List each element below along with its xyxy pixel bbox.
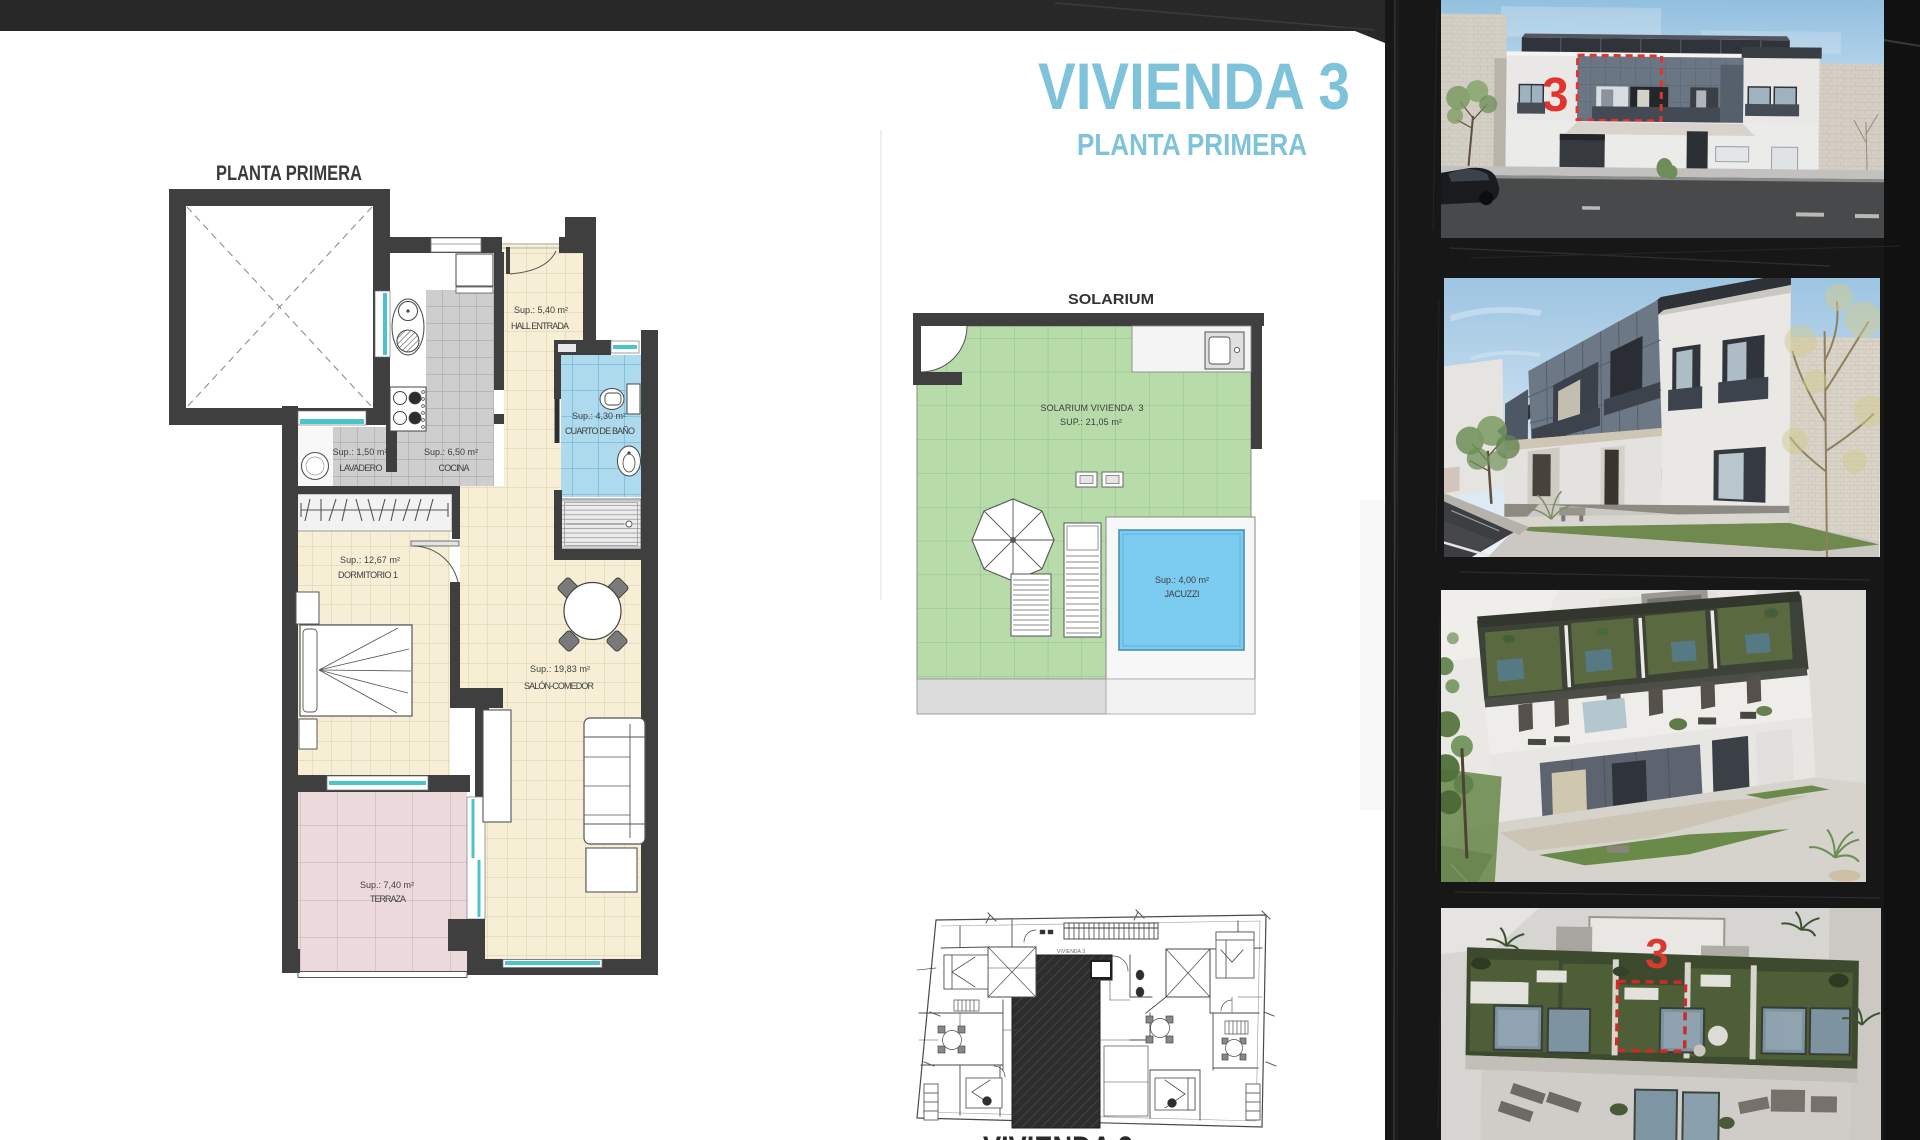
svg-text:PLANTA PRIMERA: PLANTA PRIMERA (216, 162, 362, 185)
svg-text:VIVIENDA 3: VIVIENDA 3 (1057, 949, 1085, 955)
svg-text:DORMITORIO 1: DORMITORIO 1 (338, 570, 398, 580)
svg-text:JACUZZI: JACUZZI (1165, 589, 1200, 599)
svg-text:SOLARIUM: SOLARIUM (1068, 291, 1154, 308)
svg-text:SALÓN-COMEDOR: SALÓN-COMEDOR (524, 681, 595, 691)
svg-text:CUARTO DE BAÑO: CUARTO DE BAÑO (565, 426, 635, 436)
svg-text:LAVADERO: LAVADERO (340, 463, 383, 473)
svg-text:COCINA: COCINA (439, 463, 470, 473)
svg-text:VIVIENDA 3: VIVIENDA 3 (983, 1130, 1133, 1140)
svg-text:Sup.: 1,50 m²: Sup.: 1,50 m² (333, 447, 388, 457)
svg-text:SUP.: 21,05 m²: SUP.: 21,05 m² (1060, 417, 1122, 427)
svg-text:Sup.: 6,50 m²: Sup.: 6,50 m² (424, 447, 478, 457)
svg-text:HALL ENTRADA: HALL ENTRADA (511, 321, 569, 331)
svg-text:3: 3 (1542, 69, 1569, 122)
svg-text:Sup.: 5,40 m²: Sup.: 5,40 m² (514, 305, 568, 315)
svg-text:PLANTA PRIMERA: PLANTA PRIMERA (1077, 127, 1307, 162)
svg-text:Sup.: 7,40 m²: Sup.: 7,40 m² (360, 880, 414, 890)
svg-text:VIVIENDA 3: VIVIENDA 3 (1038, 49, 1350, 123)
svg-text:TERRAZA: TERRAZA (370, 894, 406, 904)
svg-text:Sup.: 12,67 m²: Sup.: 12,67 m² (340, 555, 400, 565)
svg-text:Sup.: 4,30 m²: Sup.: 4,30 m² (572, 411, 626, 421)
svg-text:3: 3 (1645, 930, 1669, 977)
svg-text:SOLARIUM VIVIENDA 3: SOLARIUM VIVIENDA 3 (1041, 403, 1144, 413)
svg-text:Sup.: 19,83 m²: Sup.: 19,83 m² (530, 664, 590, 674)
svg-text:Sup.: 4,00 m²: Sup.: 4,00 m² (1155, 575, 1209, 585)
